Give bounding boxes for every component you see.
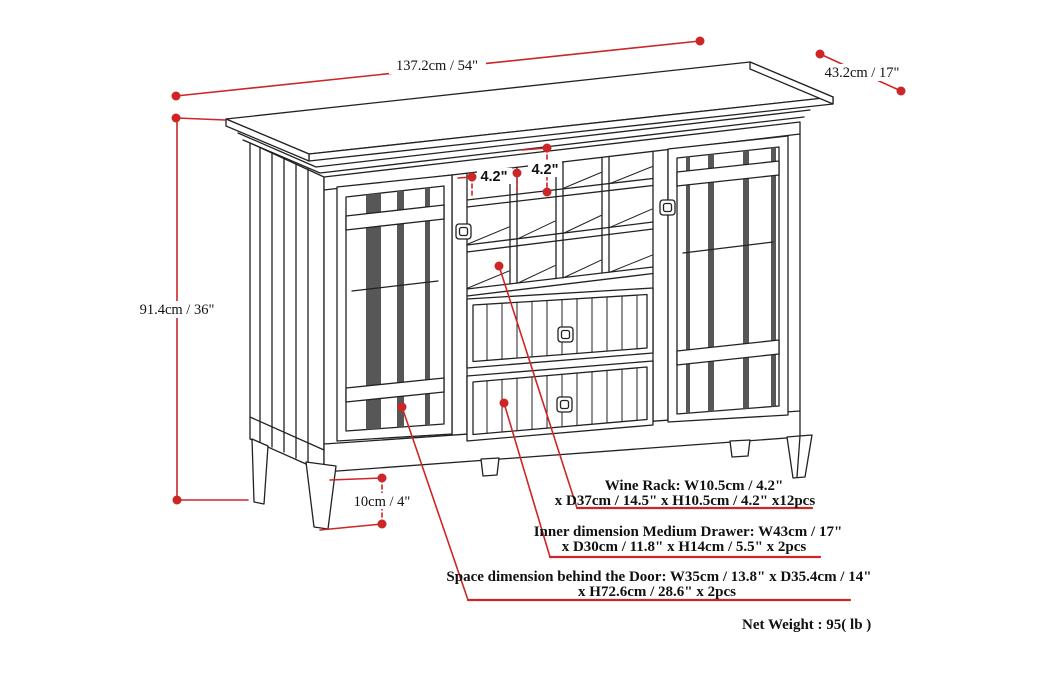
dot-cubby-width-left: [468, 173, 477, 182]
leg-height-label: 10cm / 4": [354, 494, 411, 510]
cubby-height-label: 4.2": [531, 162, 558, 178]
drawer-lower-knob[interactable]: [557, 397, 572, 412]
depth-dimension-label: 43.2cm / 17": [825, 65, 900, 81]
dot-wine-rack-anchor: [495, 262, 504, 271]
height-tick-top: [177, 118, 225, 120]
cabinet-drawing: [226, 62, 833, 529]
wine-rack-note-line1: Wine Rack: W10.5cm / 4.2": [605, 478, 784, 494]
width-dimension-label: 137.2cm / 54": [396, 58, 478, 74]
dot-height-bottom: [173, 496, 182, 505]
dot-depth-front: [897, 87, 906, 96]
diagram-canvas: 137.2cm / 54" 43.2cm / 17" 91.4cm / 36" …: [0, 0, 1051, 700]
dot-cubby-height-top: [543, 144, 552, 153]
dot-cubby-height-bottom: [543, 188, 552, 197]
leg-front-left: [306, 462, 336, 529]
left-door-knob[interactable]: [456, 224, 471, 239]
dot-door-anchor: [398, 403, 407, 412]
drawer-note-line2: x D30cm / 11.8" x H14cm / 5.5" x 2pcs: [562, 539, 807, 555]
right-door[interactable]: [660, 136, 788, 422]
dot-width-right: [696, 37, 705, 46]
leg-dim-bottom-line: [320, 524, 382, 530]
foot-center-left: [481, 458, 499, 476]
dot-depth-back: [816, 50, 825, 59]
left-door[interactable]: [337, 175, 471, 441]
cubby-width-label: 4.2": [480, 169, 507, 185]
drawer-note-line1: Inner dimension Medium Drawer: W43cm / 1…: [534, 524, 843, 540]
annotation-labels: Wine Rack: W10.5cm / 4.2" x D37cm / 14.5…: [446, 478, 871, 633]
dot-leg-top: [378, 474, 387, 483]
furniture-dimension-diagram: 137.2cm / 54" 43.2cm / 17" 91.4cm / 36" …: [0, 0, 1051, 700]
leg-back-left: [252, 439, 268, 504]
door-space-note-line2: x H72.6cm / 28.6" x 2pcs: [578, 584, 736, 600]
dot-cubby-width-right: [513, 169, 522, 178]
wine-rack-note-line2: x D37cm / 14.5" x H10.5cm / 4.2" x12pcs: [555, 493, 816, 509]
net-weight-label: Net Weight : 95( lb ): [742, 617, 871, 633]
right-door-knob[interactable]: [660, 200, 675, 215]
dot-drawer-anchor: [500, 399, 509, 408]
drawer-upper-knob[interactable]: [558, 327, 573, 342]
dot-leg-bottom: [378, 520, 387, 529]
dot-height-top: [172, 114, 181, 123]
height-dimension-label: 91.4cm / 36": [140, 302, 215, 318]
dot-width-left: [172, 92, 181, 101]
door-space-note-line1: Space dimension behind the Door: W35cm /…: [446, 569, 871, 585]
leg-dim-top-line: [330, 478, 382, 480]
foot-center-right: [730, 440, 750, 457]
